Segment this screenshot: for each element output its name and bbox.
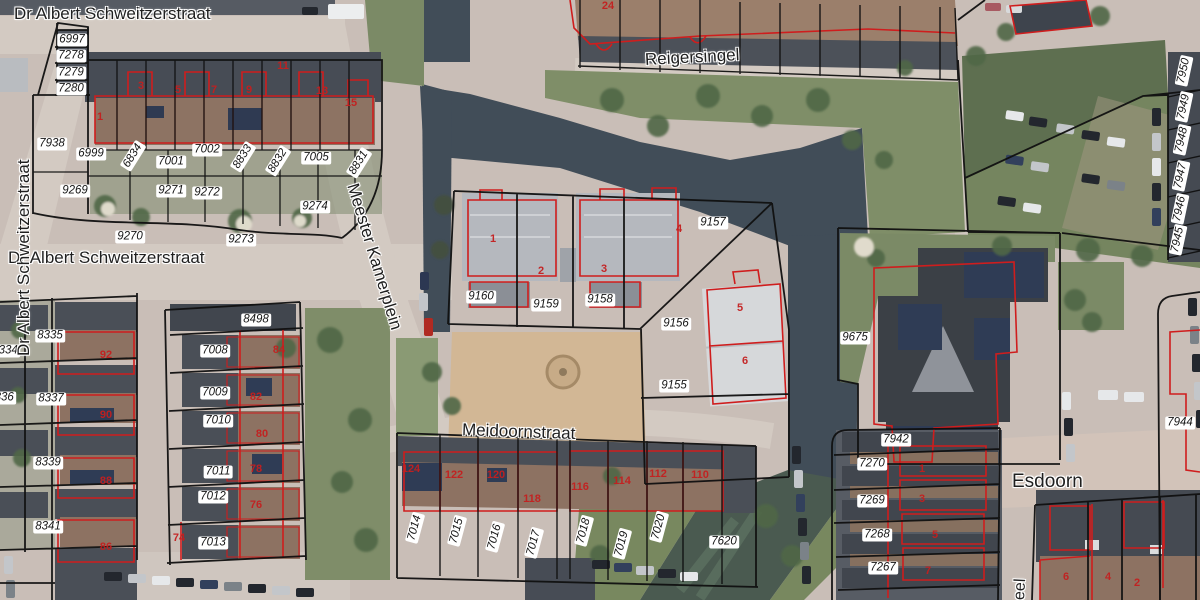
white-van — [328, 4, 364, 19]
red-car — [424, 318, 433, 336]
map-canvas[interactable]: 6997727872797280793869996834700170028833… — [0, 0, 1200, 600]
aerial-map — [0, 0, 1200, 600]
